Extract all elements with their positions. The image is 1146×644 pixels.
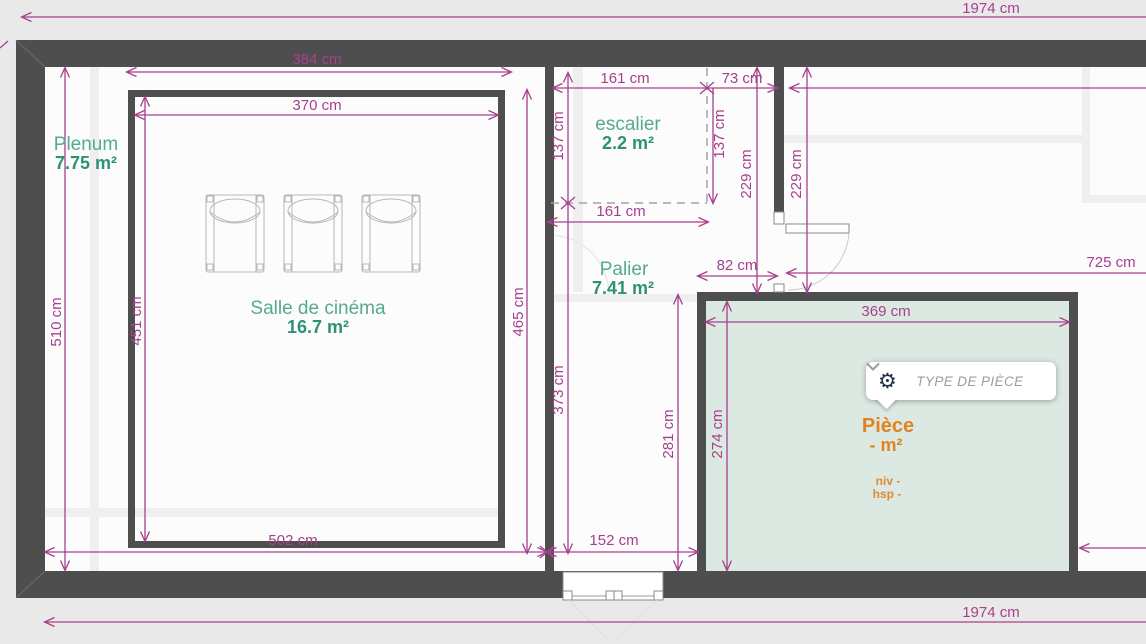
dim-label-161-top[interactable]: 161 cm [600,70,649,87]
dim-label-274[interactable]: 274 cm [709,409,726,458]
dim-label-465[interactable]: 465 cm [510,287,527,336]
wall-left[interactable] [16,40,45,598]
dim-label-total-bottom[interactable]: 1974 cm [962,604,1020,621]
dim-label-137-left[interactable]: 137 cm [550,111,567,160]
room-niv-piece[interactable]: niv - [876,474,901,488]
wall-stair-right-upper[interactable] [774,67,784,224]
dim-label-82[interactable]: 82 cm [717,257,758,274]
wall-top[interactable] [16,40,1146,67]
dim-label-229-left[interactable]: 229 cm [738,149,755,198]
dim-label-451[interactable]: 451 cm [128,296,145,345]
dim-label-total-top[interactable]: 1974 cm [962,0,1020,17]
dim-label-373[interactable]: 373 cm [550,365,567,414]
room-area-plenum[interactable]: 7.75 m² [55,153,117,173]
dim-label-502[interactable]: 502 cm [268,532,317,549]
dim-label-369[interactable]: 369 cm [861,303,910,320]
dim-label-510[interactable]: 510 cm [48,297,65,346]
dim-label-137-right[interactable]: 137 cm [711,109,728,158]
room-label-piece[interactable]: Pièce [862,415,914,437]
dim-label-384[interactable]: 384 cm [292,51,341,68]
floor-plan-drawing: 1974 cm 1974 cm 384 cm 370 cm 161 cm 73 … [0,0,1146,644]
room-area-palier[interactable]: 7.41 m² [592,278,654,298]
dim-label-73[interactable]: 73 cm [722,70,763,87]
room-hsp-piece[interactable]: hsp - [873,487,902,501]
room-label-palier[interactable]: Palier [600,259,649,280]
room-label-escalier[interactable]: escalier [595,114,661,135]
dim-label-229-right[interactable]: 229 cm [788,149,805,198]
dim-label-152[interactable]: 152 cm [589,532,638,549]
dim-label-281[interactable]: 281 cm [660,409,677,458]
wall-piece-left[interactable] [697,292,706,571]
floor-plan-canvas: 1974 cm 1974 cm 384 cm 370 cm 161 cm 73 … [0,0,1146,644]
dim-label-725[interactable]: 725 cm [1086,254,1135,271]
room-type-select-label[interactable]: TYPE DE PIÈCE [897,374,1043,389]
room-label-plenum[interactable]: Plenum [54,134,118,155]
wall-piece-right[interactable] [1069,292,1078,571]
dim-label-370[interactable]: 370 cm [292,97,341,114]
room-label-cinema[interactable]: Salle de cinéma [250,298,386,319]
wall-piece-top[interactable] [697,292,1078,301]
dim-label-161-mid[interactable]: 161 cm [596,203,645,220]
room-area-piece[interactable]: - m² [870,435,903,455]
room-area-escalier[interactable]: 2.2 m² [602,133,654,153]
room-area-cinema[interactable]: 16.7 m² [287,317,349,337]
gear-icon[interactable]: ⚙ [878,371,897,392]
room-type-popup[interactable]: ⚙ TYPE DE PIÈCE [866,362,1056,400]
